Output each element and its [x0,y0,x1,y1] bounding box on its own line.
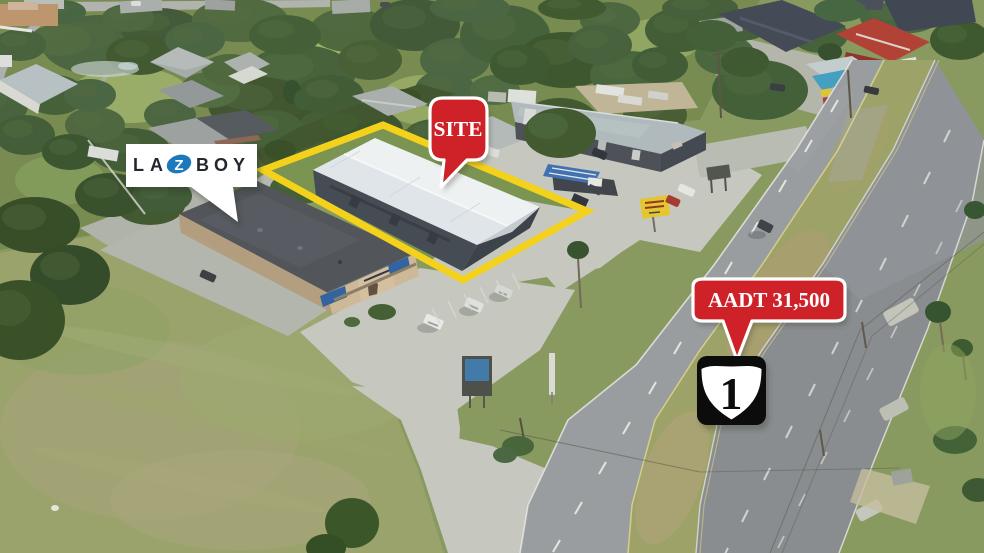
svg-text:AADT 31,500: AADT 31,500 [708,288,830,312]
svg-text:1: 1 [720,368,743,419]
svg-text:Z: Z [174,157,183,174]
svg-text:SITE: SITE [433,117,482,141]
svg-text:BOY: BOY [196,155,250,175]
svg-text:LA: LA [133,155,169,175]
